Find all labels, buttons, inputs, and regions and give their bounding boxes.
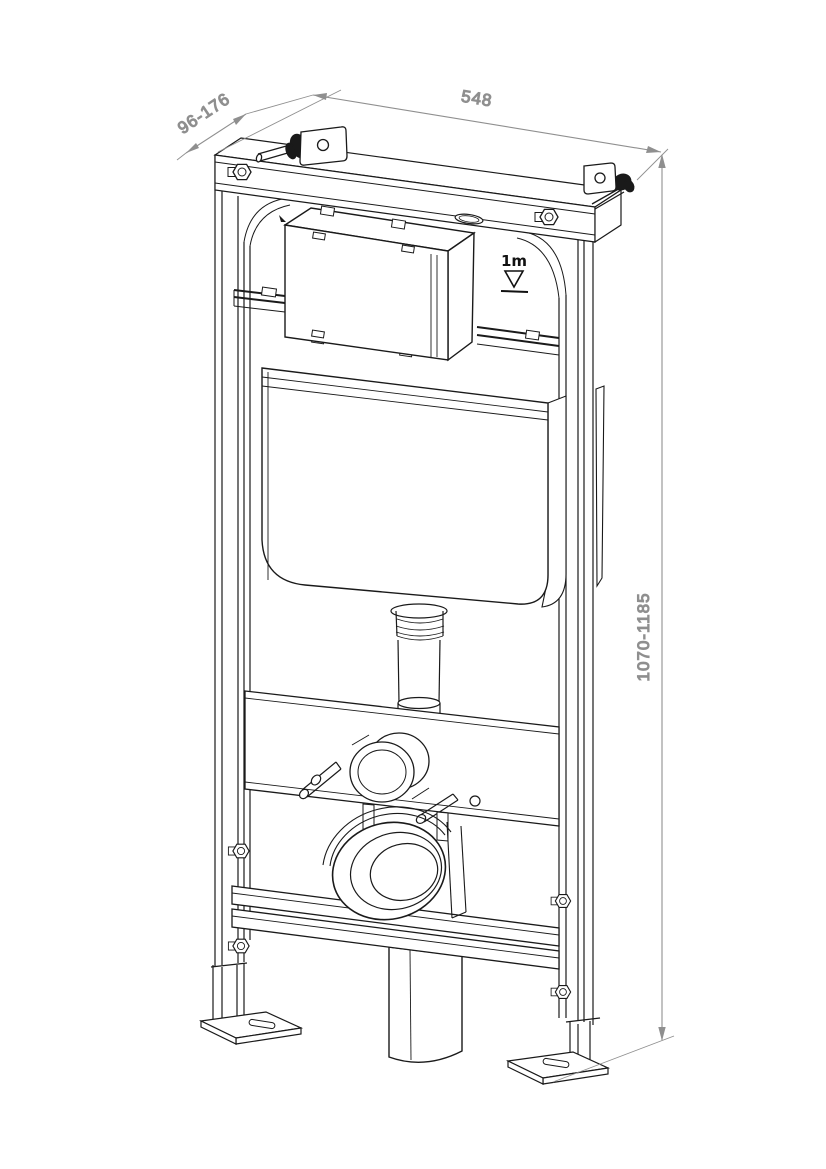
side-panel-strip xyxy=(596,386,604,586)
cistern-tank xyxy=(262,336,566,607)
technical-drawing-page: 1m 548 96-176 1070-1185 xyxy=(0,0,826,1169)
mounting-plate xyxy=(245,691,559,826)
right-foot xyxy=(508,1021,608,1084)
rail-clip xyxy=(262,287,277,297)
flush-pipe xyxy=(391,604,447,722)
rail-clip xyxy=(526,330,540,340)
meter-mark-label: 1m xyxy=(501,252,527,270)
access-box xyxy=(279,206,474,360)
rail-clip xyxy=(320,206,334,216)
bracket-hole xyxy=(318,140,329,151)
drain-pipe xyxy=(389,947,462,1062)
meter-mark: 1m xyxy=(501,252,528,292)
dimension-height-1070-1185: 1070-1185 xyxy=(553,154,674,1082)
width-dimension-label: 548 xyxy=(460,87,494,111)
elbow-bracket xyxy=(447,822,452,918)
corner-mark xyxy=(279,215,286,222)
meter-mark-arrow xyxy=(505,271,523,287)
depth-dimension-label: 96-176 xyxy=(174,89,233,138)
frame-structure xyxy=(201,127,636,1084)
wc-frame-technical-drawing: 1m 548 96-176 1070-1185 xyxy=(0,0,826,1169)
rail-clip xyxy=(391,219,405,229)
height-dimension-label: 1070-1185 xyxy=(634,592,653,681)
left-foot xyxy=(201,963,301,1044)
bracket-hole xyxy=(595,173,605,183)
